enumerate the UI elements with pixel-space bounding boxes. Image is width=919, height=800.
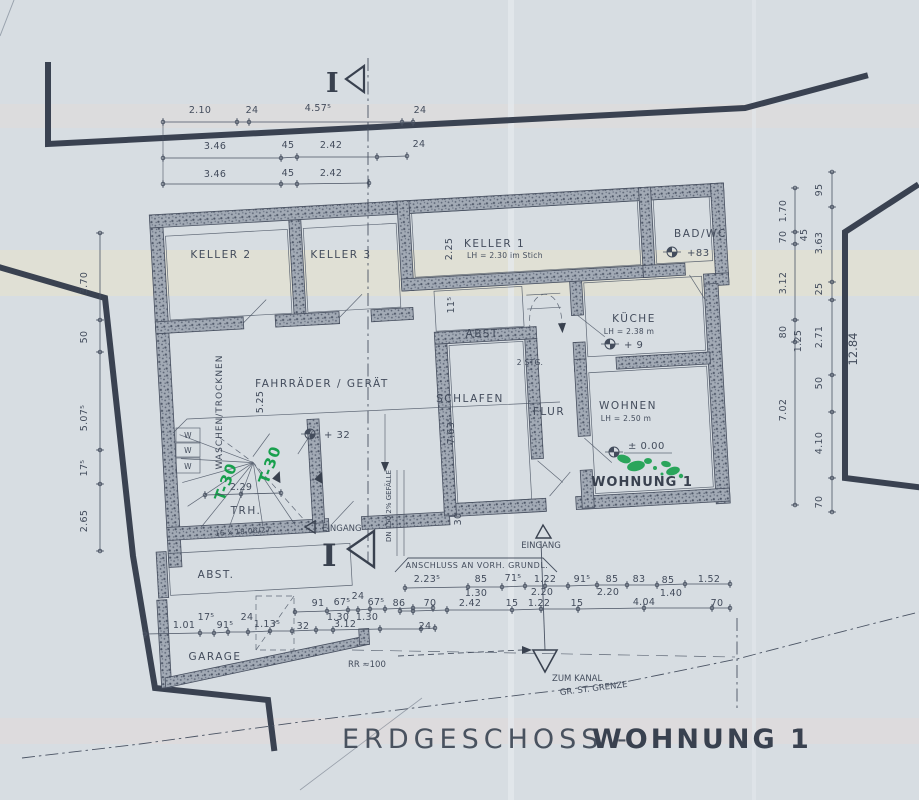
dim: 30 <box>453 513 464 526</box>
room-label-keller1: KELLER 1 <box>464 238 525 250</box>
dim: 3.46 <box>204 141 226 152</box>
section-letter: I <box>326 68 339 99</box>
room-label-trh: TRH. <box>230 505 262 517</box>
title-wohnung1: WOHNUNG 1 <box>592 724 812 755</box>
dim: 1.01 <box>173 620 195 631</box>
dim: 1.40 <box>660 588 682 599</box>
dim: 15 <box>506 598 519 609</box>
dim: 1.22 <box>534 574 556 585</box>
dim: 2.20 <box>531 587 553 598</box>
dim: 45 <box>282 168 295 179</box>
dim: 5.07⁵ <box>79 405 90 431</box>
dim: 11⁵ <box>446 297 457 314</box>
dim: 71⁵ <box>505 573 522 584</box>
dim: 1.25 <box>793 330 804 352</box>
dim: 67⁵ <box>368 597 385 608</box>
dim: 2.65 <box>79 510 90 532</box>
dim: 70 <box>814 496 825 509</box>
dim: 85 <box>606 574 619 585</box>
washer-label: W <box>184 446 192 455</box>
dim: 1.13⁵ <box>254 619 280 630</box>
dim: 24 <box>246 105 259 116</box>
dim: 3.12 <box>334 619 356 630</box>
washer-label: W <box>184 431 192 440</box>
dim: 45 <box>799 229 810 242</box>
dim: 95 <box>814 184 825 197</box>
drawing-title: ERDGESCHOSS - WOHNUNG 1 <box>342 724 812 755</box>
level-fahrraeder: + 32 <box>324 430 350 441</box>
section-letter: I <box>322 538 337 574</box>
dim: 7.63⁵ <box>446 418 457 444</box>
dim: 32 <box>297 621 310 632</box>
dim: 2.25 <box>444 238 455 260</box>
room-note-wohnen: LH = 2.50 m <box>601 414 652 423</box>
dim: 24 <box>352 591 365 602</box>
dim: 83 <box>633 574 646 585</box>
dim: 4.04 <box>633 597 655 608</box>
floor-plan-drawing: W W W I I GR. ST. GRENZE <box>0 0 919 800</box>
room-label-wohnen: WOHNEN <box>599 400 657 412</box>
dim: 25 <box>814 283 825 296</box>
dim: 70 <box>711 598 724 609</box>
dim: 7.02 <box>778 399 789 421</box>
dim: 17⁵ <box>79 460 90 477</box>
room-label-flur: FLUR <box>533 406 565 418</box>
dim: 85 <box>475 574 488 585</box>
room-note-keller1: LH = 2.30 im Stich <box>467 251 543 260</box>
room-label-kueche: KÜCHE <box>612 312 656 325</box>
dim: 24 <box>413 139 426 150</box>
dim-grenze: 12.84 <box>846 333 860 366</box>
room-label-abst-mitte: ABST. <box>466 328 503 340</box>
level-kueche: + 9 <box>624 340 643 351</box>
dim: 15 <box>571 598 584 609</box>
room-note-kueche: LH = 2.38 m <box>604 327 655 336</box>
dim: 24 <box>241 612 254 623</box>
room-label-wohnung1: WOHNUNG 1 <box>591 475 693 490</box>
dim: 85 <box>662 575 675 586</box>
floor-plan-sheet: W W W I I GR. ST. GRENZE <box>0 0 919 800</box>
room-label-abst-anbau: ABST. <box>198 569 235 581</box>
dim: 80 <box>778 326 789 339</box>
title-erdgeschoss: ERDGESCHOSS - <box>342 724 632 755</box>
dim: 91 <box>312 598 325 609</box>
dim: 1.52 <box>698 574 720 585</box>
room-label-keller3: KELLER 3 <box>310 249 371 261</box>
room-label-badwc: BAD/WC <box>674 228 727 240</box>
dim: 3.63 <box>814 232 825 254</box>
room-label-waschen: WASCHEN/TROCKNEN <box>215 355 225 470</box>
dim: 1.22 <box>528 598 550 609</box>
rr-label: RR ≈100 <box>348 660 386 670</box>
dim: 2.71 <box>814 326 825 348</box>
level-wohnen: ± 0.00 <box>628 441 665 452</box>
dim: 5.25 <box>255 391 266 413</box>
room-label-schlafen: SCHLAFEN <box>436 393 504 405</box>
dim: 4.10 <box>814 432 825 454</box>
dim: 50 <box>79 331 90 344</box>
room-label-keller2: KELLER 2 <box>190 249 251 261</box>
dim: 3.12 <box>778 272 789 294</box>
dim: 91⁵ <box>574 574 591 585</box>
dim: 1.70 <box>778 200 789 222</box>
washer-label: W <box>184 462 192 471</box>
dim: 17⁵ <box>198 612 215 623</box>
label-2stg: 2 STG. <box>517 358 544 367</box>
eingang-label: EINGANG <box>322 524 362 534</box>
dim: 3.70 <box>79 272 90 294</box>
dim: 45 <box>282 140 295 151</box>
dim: 86 <box>393 598 406 609</box>
gefaelle-label: DN 150 2% GEFÄLLE <box>384 470 393 542</box>
dim: 50 <box>814 377 825 390</box>
level-badwc: +83 <box>687 248 710 259</box>
room-label-fahrraeder: FAHRRÄDER / GERÄT <box>255 377 389 390</box>
dim: 2.20 <box>597 587 619 598</box>
dim: 67⁵ <box>334 597 351 608</box>
anschluss-leader: ANSCHLUSS AN VORH. GRUNDL. <box>395 558 557 572</box>
dim: 2.42 <box>320 168 342 179</box>
room-label-garage: GARAGE <box>189 651 242 663</box>
dim: 2.23⁵ <box>414 574 440 585</box>
eingang-label: EINGANG <box>521 541 561 551</box>
dim: 24 <box>419 621 432 632</box>
dim: 91⁵ <box>217 620 234 631</box>
dim: 2.29 <box>230 482 252 493</box>
dim: 2.42 <box>459 598 481 609</box>
dim: 2.42 <box>320 140 342 151</box>
dim: 1.30 <box>356 612 378 623</box>
dim: 24 <box>414 105 427 116</box>
dim: 3.46 <box>204 169 226 180</box>
dim: 2.10 <box>189 105 211 116</box>
dim: 70 <box>424 598 437 609</box>
dim: 4.57⁵ <box>305 103 331 114</box>
dim: 70 <box>778 231 789 244</box>
zum-kanal-label: ZUM KANAL <box>552 674 602 684</box>
anschluss-label: ANSCHLUSS AN VORH. GRUNDL. <box>406 561 549 570</box>
